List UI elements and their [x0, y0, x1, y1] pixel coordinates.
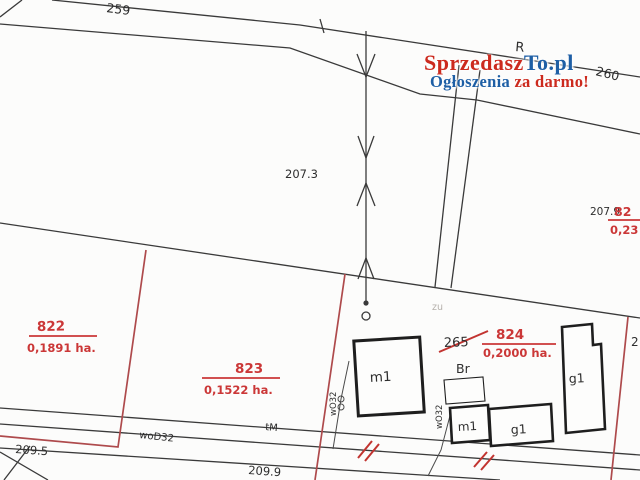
utility-label-wod32: woD32	[139, 430, 175, 445]
parcel-823-number: 823	[235, 361, 263, 377]
parcel-822-number: 822	[37, 319, 65, 335]
clipped-number-right-edge: 2	[631, 335, 639, 349]
land-class-Br: Br	[456, 361, 471, 376]
building-label-m1-big: m1	[369, 369, 392, 386]
road-number-260: 260	[594, 63, 621, 83]
utility-label-wo32-left: wO32	[329, 392, 339, 416]
watermark-logo: SprzedaszTo.pl Ogłoszenia za darmo!	[424, 52, 589, 91]
parcel-825-area-clipped: 0,23	[610, 223, 638, 237]
survey-point-dot	[363, 300, 368, 305]
parcel-825-number-clipped: 82	[614, 204, 631, 219]
building-annex-outline	[444, 377, 485, 404]
boundary-parcel-824-east	[611, 317, 628, 480]
watermark-tagline: Ogłoszenia za darmo!	[430, 74, 589, 91]
corner-line-fragment	[0, 0, 22, 17]
watermark-tagline-part1: Ogłoszenia	[430, 72, 514, 91]
parcel-824-area: 0,2000 ha.	[483, 346, 552, 360]
utility-label-wo32-right: wO32	[435, 405, 445, 429]
road-number-209-9: 209.9	[248, 463, 282, 479]
survey-tick	[320, 19, 324, 33]
parcel-822-area: 0,1891 ha.	[27, 341, 96, 355]
old-parcel-number-265: 265	[444, 335, 469, 351]
land-class-zu: zu	[432, 302, 443, 313]
utility-label-tm: tM	[265, 422, 278, 434]
parcel-row-boundary-line	[0, 223, 640, 318]
road-number-209-5: 209.5	[15, 442, 49, 458]
parcel-number-207-3: 207.3	[285, 167, 318, 181]
survey-arrow-line	[357, 31, 375, 303]
building-label-m1-small: m1	[457, 419, 477, 434]
building-label-g1-small: g1	[510, 421, 527, 437]
road-number-259: 259	[106, 0, 132, 18]
survey-point-circle	[362, 312, 370, 320]
parcel-823-area: 0,1522 ha.	[204, 383, 273, 397]
cadastral-map-screenshot: 259 260 R 207.3 207.9 265 Br zu 2 209.5 …	[0, 0, 640, 480]
red-hatch-marks	[474, 452, 494, 470]
parcel-824-number: 824	[496, 327, 524, 343]
building-label-g1-tall: g1	[568, 370, 585, 386]
watermark-tagline-part2: za darmo!	[514, 72, 589, 91]
